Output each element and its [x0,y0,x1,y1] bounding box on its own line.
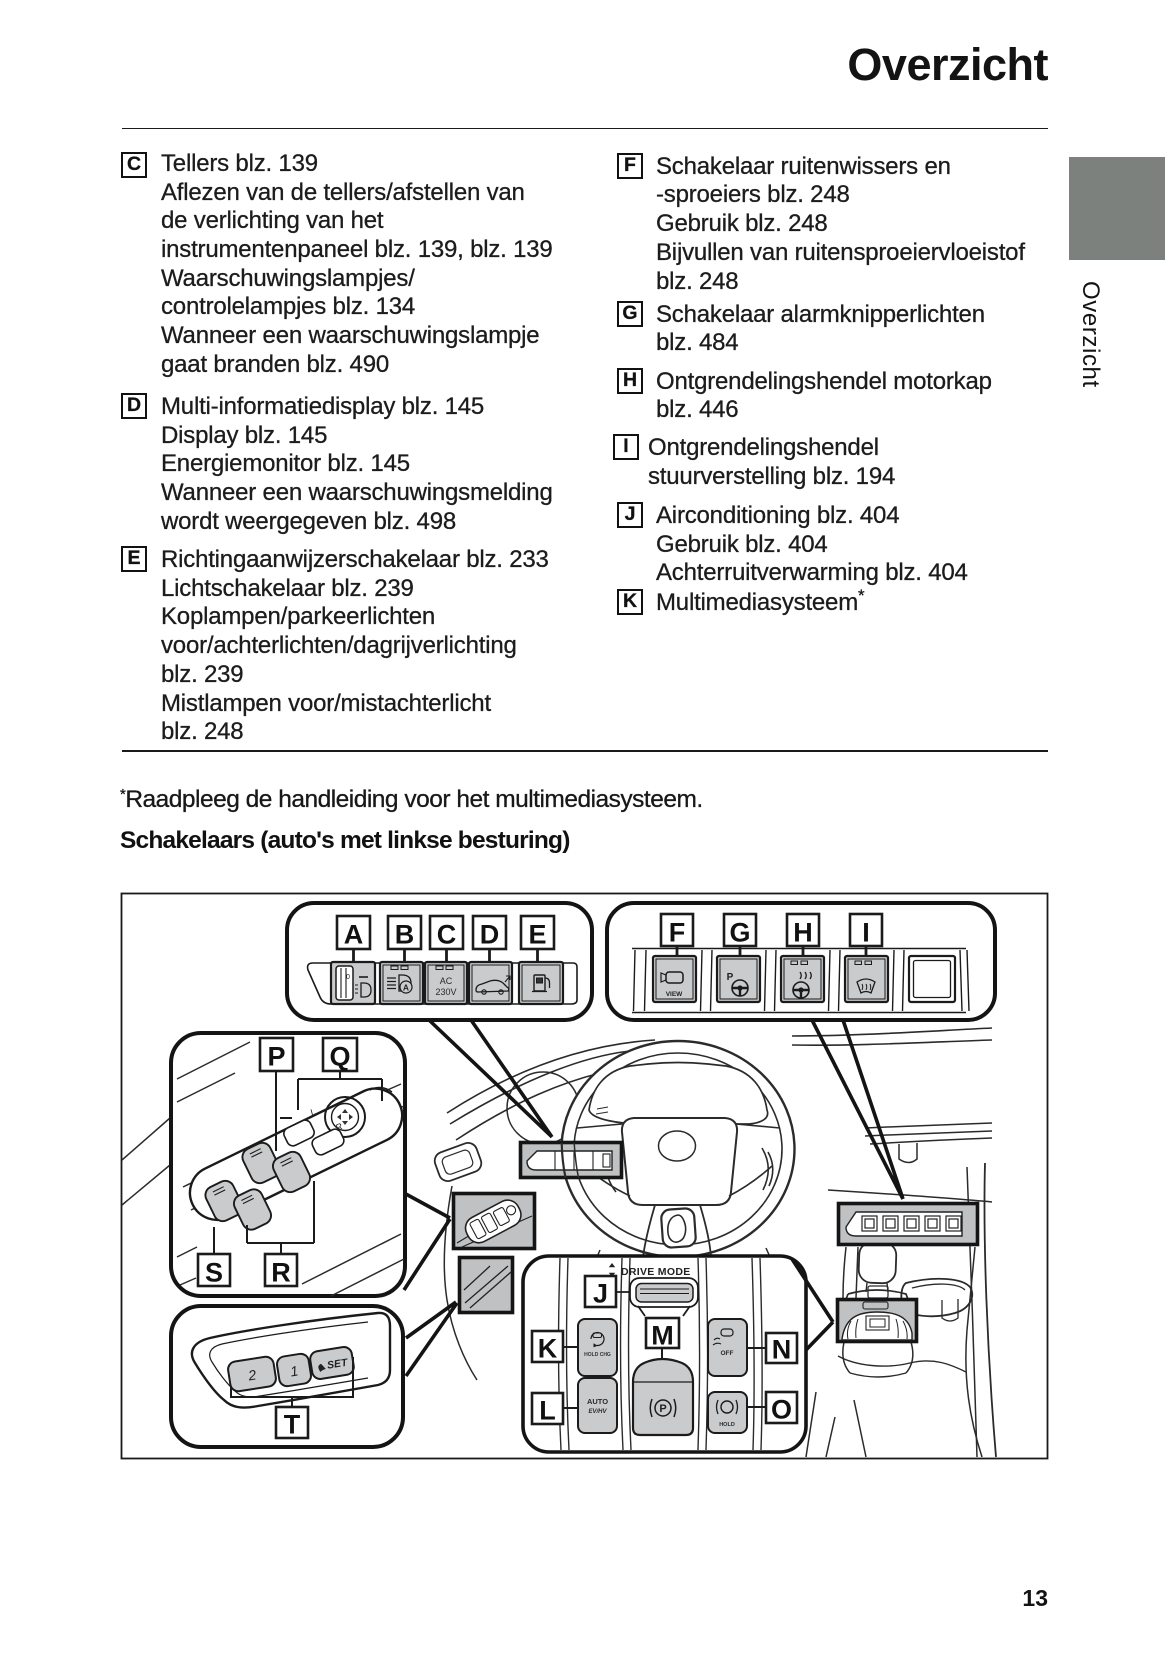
svg-text:0: 0 [346,974,350,981]
svg-text:J: J [593,1279,608,1309]
svg-text:AUTO: AUTO [587,1397,608,1406]
svg-text:DRIVE MODE: DRIVE MODE [621,1266,691,1278]
svg-text:S: S [205,1258,223,1288]
svg-text:EV/HV: EV/HV [588,1409,607,1415]
svg-text:VIEW: VIEW [666,991,683,998]
svg-text:230V: 230V [435,987,456,997]
svg-text:A: A [344,920,364,950]
svg-text:L: L [539,1396,556,1426]
svg-text:E: E [528,920,546,950]
svg-text:F: F [669,918,686,948]
svg-text:I: I [862,918,870,948]
svg-text:OFF: OFF [721,1350,734,1357]
svg-text:HOLD: HOLD [719,1422,735,1428]
svg-text:HOLD CHG: HOLD CHG [584,1352,611,1358]
svg-text:A: A [403,983,409,993]
svg-text:B: B [395,920,415,950]
svg-text:AC: AC [440,976,453,986]
svg-text:M: M [651,1321,674,1351]
svg-text:D: D [480,920,500,950]
svg-text:R: R [271,1258,291,1288]
svg-text:C: C [437,920,457,950]
svg-text:P: P [727,972,734,983]
svg-text:P: P [659,1403,666,1415]
svg-text:N: N [772,1335,792,1365]
svg-text:P: P [267,1042,285,1072]
svg-text:O: O [771,1395,792,1425]
svg-text:T: T [284,1410,301,1440]
svg-text:K: K [538,1334,558,1364]
svg-text:G: G [729,918,750,948]
svg-text:Q: Q [329,1042,350,1072]
svg-text:H: H [793,918,813,948]
